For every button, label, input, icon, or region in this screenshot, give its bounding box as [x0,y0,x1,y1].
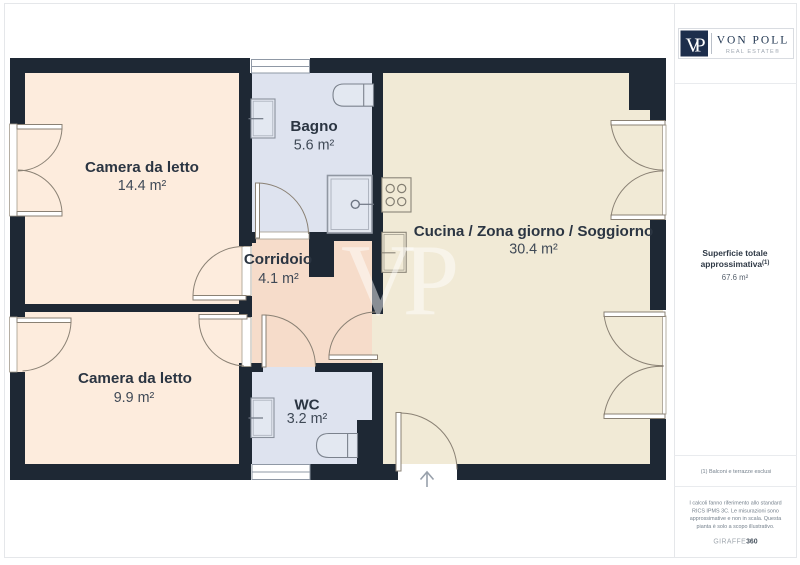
svg-text:VON POLL: VON POLL [717,35,790,47]
svg-text:5.6 m²: 5.6 m² [294,138,335,154]
svg-text:Bagno: Bagno [290,118,337,135]
svg-text:Superficie totale: Superficie totale [702,248,767,258]
svg-text:REAL ESTATE®: REAL ESTATE® [726,48,780,55]
svg-text:67.6 m²: 67.6 m² [722,273,749,282]
svg-text:approssimativa(1): approssimativa(1) [701,259,770,269]
svg-text:Camera da letto: Camera da letto [78,370,192,387]
svg-text:30.4 m²: 30.4 m² [509,242,558,258]
svg-text:(1) Balconi e terrazze esclusi: (1) Balconi e terrazze esclusi [701,469,772,475]
svg-text:14.4 m²: 14.4 m² [118,178,167,194]
svg-text:Cucina / Zona giorno / Soggior: Cucina / Zona giorno / Soggiorno [414,223,654,240]
svg-text:4.1 m²: 4.1 m² [258,271,299,287]
svg-text:pianta è solo a scopo illustra: pianta è solo a scopo illustrativo. [697,524,775,530]
svg-text:Camera da letto: Camera da letto [85,159,199,176]
svg-text:GIRAFFE360: GIRAFFE360 [713,539,757,546]
svg-text:Corridoio: Corridoio [244,251,312,268]
svg-text:VP: VP [341,224,456,337]
svg-text:I calcoli fanno riferimento al: I calcoli fanno riferimento allo standar… [689,501,781,507]
svg-text:9.9 m²: 9.9 m² [114,390,155,406]
svg-text:3.2 m²: 3.2 m² [287,411,328,427]
svg-text:RICS IPMS 3C. Le misurazioni s: RICS IPMS 3C. Le misurazioni sono [692,508,779,514]
svg-text:approssimative e non in scala.: approssimative e non in scala. Questa [690,516,781,522]
